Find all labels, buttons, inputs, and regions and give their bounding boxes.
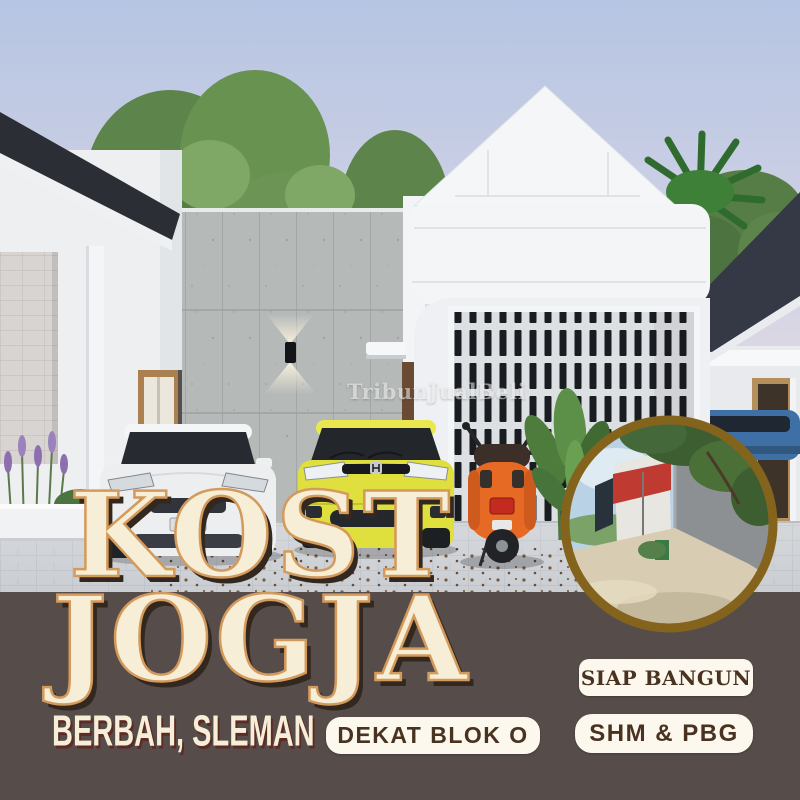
badge-shm-pbg: SHM & PBG xyxy=(575,714,753,753)
kost-jogja-poster: TribunJualBeli xyxy=(0,0,800,800)
parapet xyxy=(408,204,710,304)
badge-siap-bangun: SIAP BANGUN xyxy=(579,659,753,696)
stone-pillar xyxy=(0,252,58,464)
watermark: TribunJualBeli xyxy=(347,379,547,404)
badge-dekat-blok-o: DEKAT BLOK O xyxy=(326,717,540,754)
poster-title-line2: JOGJA xyxy=(26,581,496,698)
street-photo-inset xyxy=(557,412,781,636)
wall-sconce-light xyxy=(285,342,296,363)
entry-canopy xyxy=(366,342,406,355)
location-text: BERBAH, SLEMAN xyxy=(52,708,315,758)
